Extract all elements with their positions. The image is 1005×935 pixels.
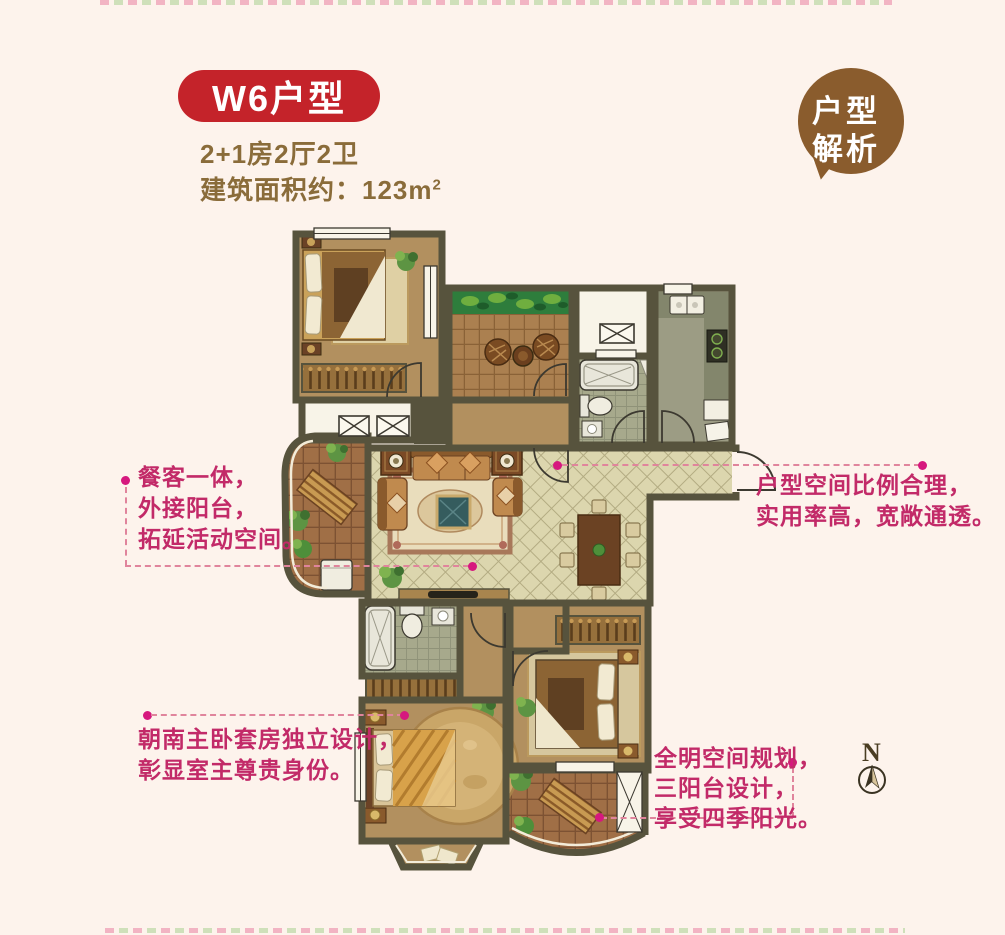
double-sink [670, 296, 704, 314]
annotation-line: 实用率高，宽敞通透。 [756, 501, 996, 532]
sink [432, 608, 454, 625]
window [424, 266, 437, 338]
room-foyer [576, 288, 650, 356]
pillow [305, 296, 322, 335]
annotation-line: 彰显室主尊贵身份。 [138, 755, 402, 786]
annotation-line: 户型空间比例合理， [756, 470, 996, 501]
connector-line [151, 714, 403, 716]
sink [582, 421, 602, 437]
pillow [597, 664, 615, 701]
annotation-line: 外接阳台， [138, 493, 306, 524]
entry-opening [732, 452, 741, 492]
annotation-dining-balcony: 餐客一体， 外接阳台， 拓延活动空间。 [138, 462, 306, 555]
pillow [597, 704, 615, 741]
furniture-bedroom-2 [302, 236, 418, 392]
appliance [705, 421, 730, 441]
flue-window-box [339, 416, 369, 436]
annotation-layout-ratio: 户型空间比例合理， 实用率高，宽敞通透。 [756, 470, 996, 532]
annotation-line: 享受四季阳光。 [654, 804, 822, 834]
rattan-chair [485, 339, 511, 365]
tv [428, 591, 478, 598]
wardrobe [366, 676, 460, 700]
floor-plan-page: W6户型 2+1房2厅2卫 建筑面积约：123m2 户型 解析 [0, 0, 1005, 935]
window [617, 772, 642, 832]
connector-line [562, 464, 920, 466]
compass-icon [848, 738, 898, 800]
bed [536, 660, 618, 748]
connector-line [125, 487, 127, 566]
room-vestibule [449, 400, 572, 448]
annotation-line: 拓延活动空间。 [138, 524, 306, 555]
connector-dot [918, 461, 927, 470]
pillow [305, 254, 322, 293]
compass: N [848, 738, 898, 800]
wardrobe [302, 364, 406, 392]
room-master-hall [460, 602, 506, 700]
foyer-fixtures [600, 324, 634, 343]
armchair [378, 478, 407, 530]
fridge [704, 400, 730, 420]
annotation-master-suite: 朝南主卧套房独立设计， 彰显室主尊贵身份。 [138, 724, 402, 786]
bed [303, 250, 385, 340]
annotation-line: 三阳台设计， [654, 774, 822, 804]
connector-dot [400, 711, 409, 720]
window [556, 762, 614, 772]
armchair [493, 478, 522, 516]
window [664, 284, 692, 294]
annotation-line: 朝南主卧套房独立设计， [138, 724, 402, 755]
connector-line [125, 565, 469, 567]
connector-dot [595, 813, 604, 822]
window [596, 350, 636, 358]
annotation-three-balconies: 全明空间规划， 三阳台设计， 享受四季阳光。 [654, 744, 822, 834]
connector-dot [553, 461, 562, 470]
rattan-chair [533, 334, 559, 360]
window [314, 228, 390, 239]
annotation-line: 全明空间规划， [654, 744, 822, 774]
flue-window-box [377, 416, 409, 436]
annotation-line: 餐客一体， [138, 462, 306, 493]
toilet [580, 395, 612, 417]
stove [707, 330, 727, 362]
connector-dot [468, 562, 477, 571]
toilet [400, 606, 424, 638]
connector-dot [121, 476, 130, 485]
table-plant [593, 544, 605, 556]
